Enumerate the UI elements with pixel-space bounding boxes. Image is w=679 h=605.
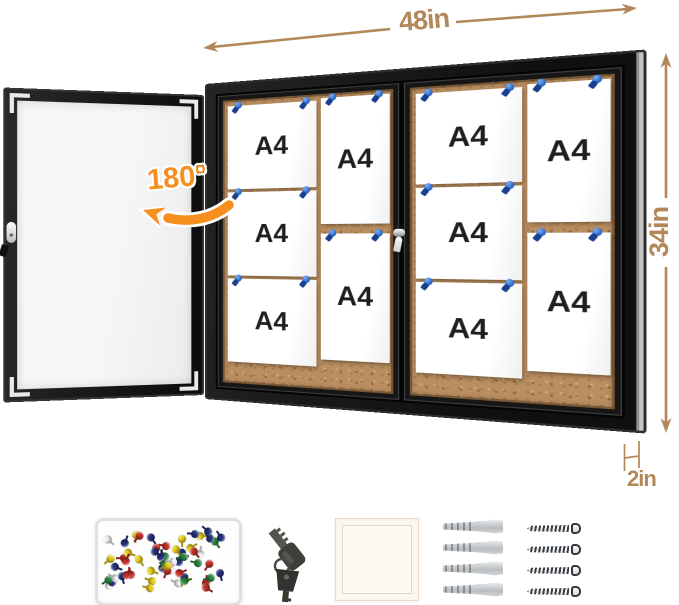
paper-size-label: A4 — [448, 312, 488, 346]
screw-shaft — [527, 546, 569, 553]
paper-size-label: A4 — [448, 119, 488, 154]
push-pin-icon — [233, 274, 243, 285]
a4-paper: A4 — [527, 232, 610, 375]
push-pin-icon — [300, 276, 311, 288]
a4-paper: A4 — [416, 282, 522, 379]
paper-size-label: A4 — [337, 143, 373, 176]
a4-paper: A4 — [228, 190, 317, 277]
push-pin-icon — [590, 228, 604, 241]
push-pin-icon — [422, 88, 434, 101]
cork-board: A4A4A4A4A4 — [410, 74, 615, 410]
screw-shaft — [527, 567, 569, 574]
door-latch-icon — [0, 244, 9, 257]
paper-size-label: A4 — [547, 134, 591, 170]
screw-head — [571, 523, 581, 534]
screw — [527, 542, 581, 556]
push-pin-icon — [372, 229, 384, 241]
paper-size-label: A4 — [448, 216, 488, 249]
push-pin-icon — [300, 186, 311, 198]
push-pin — [203, 558, 216, 571]
product-image: 48in 34in 2in 180° A4A4A4A4A4 A4A4A4A4A4 — [0, 0, 679, 605]
keys-icon — [253, 516, 325, 604]
a4-paper: A4 — [416, 185, 522, 280]
push-pin-icon — [503, 181, 516, 194]
push-pin-icon — [503, 279, 516, 292]
paper-size-label: A4 — [255, 130, 288, 161]
push-pin — [215, 568, 226, 579]
door-swing-angle-label: 180° — [146, 159, 209, 197]
a4-paper: A4 — [321, 94, 390, 225]
push-pin-icon — [326, 93, 337, 105]
push-pin-icon — [372, 90, 384, 103]
push-pin — [145, 531, 158, 544]
left-sliding-door-panel: A4A4A4A4A4 — [216, 81, 402, 403]
push-pin — [119, 536, 131, 548]
paper-size-label: A4 — [255, 219, 288, 249]
a4-paper: A4 — [527, 79, 610, 223]
push-pin-icon — [233, 101, 243, 113]
push-pin — [102, 533, 115, 546]
bulletin-board-cabinet: A4A4A4A4A4 A4A4A4A4A4 — [205, 49, 646, 433]
screw-head — [571, 586, 581, 597]
height-dimension-label: 34in — [630, 204, 679, 260]
push-pins-box-icon — [95, 518, 242, 605]
wall-anchor — [443, 540, 503, 555]
push-pin-icon — [534, 228, 547, 241]
push-pin — [144, 583, 155, 594]
paper-pad-icon — [335, 518, 419, 601]
width-dimension-label: 48in — [387, 2, 461, 39]
push-pin — [146, 564, 158, 576]
push-pin — [192, 559, 203, 570]
screw — [527, 584, 581, 598]
push-pin — [205, 573, 216, 584]
screws-icon — [527, 521, 583, 598]
push-pin-icon — [300, 97, 311, 109]
paper-size-label: A4 — [547, 285, 591, 320]
cabinet-lock-icon — [393, 229, 405, 237]
open-glass-door — [3, 87, 204, 402]
corner-bracket-icon — [10, 93, 30, 114]
push-pin — [178, 552, 188, 562]
screw — [527, 563, 581, 577]
a4-paper: A4 — [321, 233, 390, 363]
corner-bracket-icon — [10, 376, 30, 397]
right-sliding-door-panel: A4A4A4A4A4 — [402, 64, 625, 418]
paper-size-label: A4 — [255, 306, 288, 337]
cork-board: A4A4A4A4A4 — [223, 89, 394, 394]
wall-anchor — [443, 519, 503, 534]
corner-bracket-icon — [180, 371, 199, 391]
push-pin — [190, 530, 200, 540]
push-pin — [178, 535, 187, 544]
wall-anchor — [443, 561, 503, 576]
screw-shaft — [527, 588, 569, 595]
push-pin-icon — [590, 74, 604, 88]
push-pin-icon — [422, 278, 434, 290]
screw-head — [571, 565, 581, 576]
screw-head — [571, 544, 581, 555]
push-pin — [156, 552, 166, 562]
screw — [527, 521, 581, 535]
depth-dimension-label: 2in — [627, 466, 656, 492]
a4-paper: A4 — [228, 278, 317, 366]
push-pin-icon — [534, 78, 547, 92]
wall-anchors-icon — [443, 519, 507, 597]
wall-anchor — [443, 582, 503, 597]
push-pin-icon — [326, 229, 337, 241]
door-lock-icon — [6, 222, 16, 243]
a4-paper: A4 — [228, 101, 317, 190]
push-pin-icon — [233, 188, 243, 199]
a4-paper: A4 — [416, 87, 522, 185]
push-pin-icon — [422, 183, 434, 196]
screw-shaft — [527, 525, 569, 532]
corner-bracket-icon — [180, 99, 199, 119]
paper-pad-inner — [342, 525, 412, 594]
paper-size-label: A4 — [337, 281, 373, 313]
push-pin-icon — [503, 83, 516, 97]
door-glass — [17, 101, 191, 390]
